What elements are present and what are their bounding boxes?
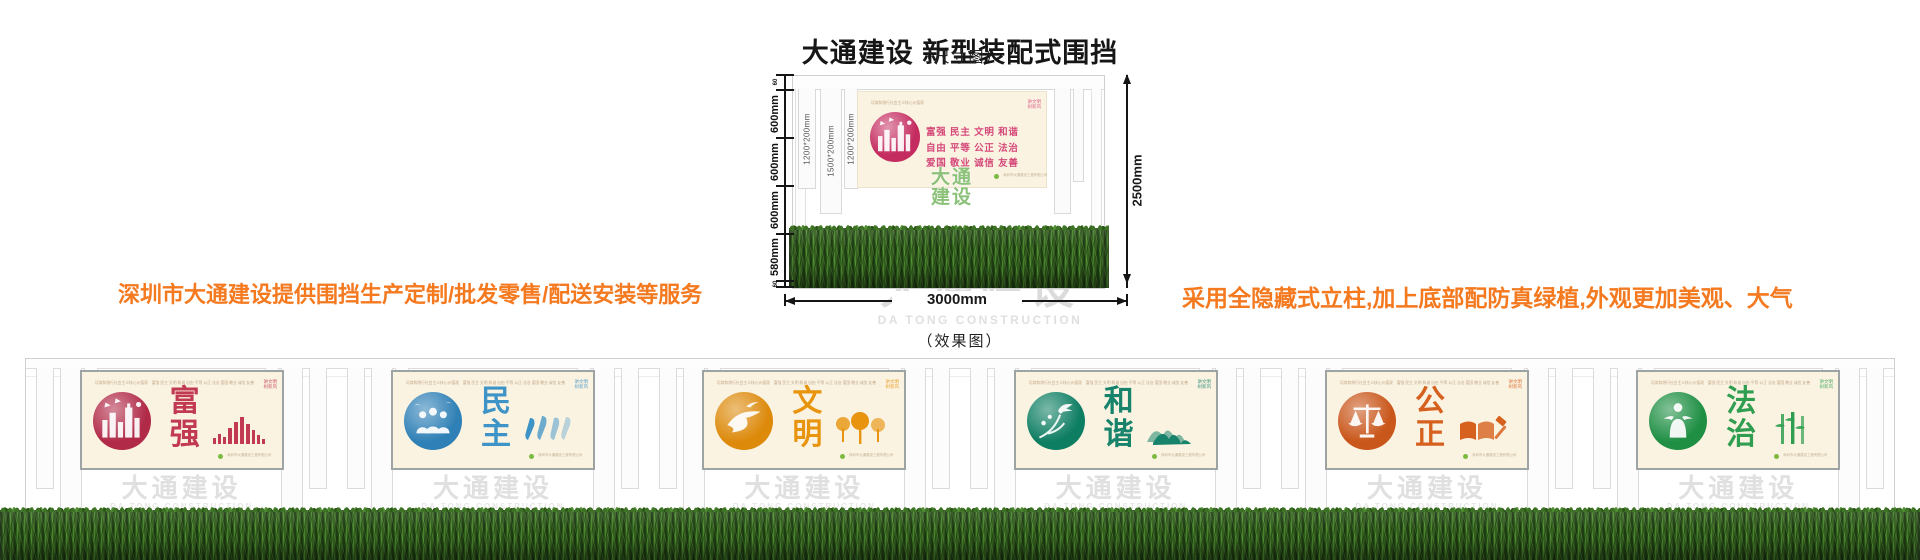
circle-motif-icon [1027, 392, 1085, 450]
circle-motif-icon [715, 392, 773, 450]
feature-note: 采用全隐藏式立柱,加上底部配防真绿植,外观更加美观、大气 [1182, 279, 1793, 313]
dim-label: 60 [773, 276, 781, 292]
fence-unit: 培育和践行社会主义核心价值观 富强 民主 文明 和谐 自由 平等 公正 法治 爱… [1583, 359, 1894, 515]
panel-corner-slogan: 讲文明 树新风 [1508, 379, 1522, 389]
panel-title: 富强 [168, 385, 202, 451]
green-dot-icon [1774, 454, 1779, 459]
panel-corner-slogan: 讲文明 树新风 [263, 379, 277, 389]
green-dot-icon [994, 174, 999, 179]
side-motif-icon [832, 412, 890, 446]
fence-post [1073, 89, 1084, 182]
panel-circle-graphic [1649, 392, 1707, 450]
green-dot-icon [529, 454, 534, 459]
panel-caption: 深圳市大通建设工程有限公司 [849, 452, 893, 457]
circle-motif-icon [1649, 392, 1707, 450]
fence-post [1527, 368, 1549, 516]
circle-motif-icon [1338, 392, 1396, 450]
value-panel: 培育和践行社会主义核心价值观 富强 民主 文明 和谐 自由 平等 公正 法治 爱… [391, 370, 595, 470]
green-dot-icon [218, 454, 223, 459]
dim-label: 580mm [769, 235, 783, 279]
panel-circle-graphic [1338, 392, 1396, 450]
watermark-en: DA TONG CONSTRUCTION [855, 313, 1105, 327]
panel-title: 民主 [479, 385, 513, 451]
panel-circle-graphic [93, 392, 151, 450]
panel-title: 和谐 [1102, 385, 1136, 451]
fence-post [309, 368, 327, 489]
fence-unit: 培育和践行社会主义核心价值观 富强 民主 文明 和谐 自由 平等 公正 法治 爱… [26, 359, 337, 515]
panel-caption: 深圳市大通建设工程有限公司 [1003, 172, 1047, 177]
fence-post [904, 368, 926, 516]
side-motif-icon [1766, 412, 1824, 446]
panel-title: 公正 [1413, 385, 1447, 451]
fence-post [1555, 368, 1573, 489]
fence-post [281, 368, 303, 516]
fence-post [1593, 368, 1611, 489]
fence-render: 培育和践行社会主义核心价值观 富强 民主 文明 和谐 自由 平等 公正 法治 爱… [25, 358, 1895, 515]
circle-motif-icon [93, 392, 151, 450]
fence-post [1215, 368, 1237, 516]
fence-drawing: 1200*200mm 1500*200mm 1200*200mm 培育和践行社会… [792, 75, 1105, 289]
value-panel: 培育和践行社会主义核心价值观 富强 民主 文明 和谐 自由 平等 公正 法治 爱… [1014, 370, 1218, 470]
panel-caption: 深圳市大通建设工程有限公司 [227, 452, 271, 457]
fence-unit: 培育和践行社会主义核心价值观 富强 民主 文明 和谐 自由 平等 公正 法治 爱… [649, 359, 960, 515]
total-height-label: 2500mm [1130, 146, 1145, 216]
fence-post [970, 368, 988, 489]
arrow-right-icon [1117, 297, 1127, 305]
fence-post [347, 368, 365, 489]
value-panel: 培育和践行社会主义核心价值观 富强 民主 文明 和谐 自由 平等 公正 法治 爱… [80, 370, 284, 470]
fence-post [1054, 89, 1071, 214]
panel-corner-slogan: 讲文明 树新风 [886, 379, 900, 389]
panel-title: 文明 [790, 385, 824, 451]
fence-post: 1500*200mm [820, 89, 842, 214]
core-values-text: 富强 民主 文明 和谐 自由 平等 公正 法治 爱国 敬业 诚信 友善 [926, 125, 1019, 172]
fence-post [36, 368, 54, 489]
panel-caption: 深圳市大通建设工程有限公司 [1161, 452, 1205, 457]
dim-label: 60 [773, 74, 781, 90]
dim-label: 600mm [769, 188, 783, 232]
post-size-label: 1200*200mm [847, 113, 856, 165]
side-motif-icon [521, 412, 579, 446]
panel-caption: 深圳市大通建设工程有限公司 [538, 452, 582, 457]
panel-corner-slogan: 讲文明 树新风 [1197, 379, 1211, 389]
fence-unit: 培育和践行社会主义核心价值观 富强 民主 文明 和谐 自由 平等 公正 法治 爱… [337, 359, 648, 515]
dim-label: 600mm [769, 92, 783, 136]
value-panel: 培育和践行社会主义核心价值观 富强 民主 文明 和谐 自由 平等 公正 法治 爱… [1636, 370, 1840, 470]
panel-corner-slogan: 讲文明 树新风 [1027, 99, 1041, 109]
fence-post: 1200*200mm [844, 89, 858, 189]
panel-circle-graphic [404, 392, 462, 450]
panel-caption: 深圳市大通建设工程有限公司 [1472, 452, 1516, 457]
panel-corner-slogan: 讲文明 树新风 [1820, 379, 1834, 389]
post-size-label: 1200*200mm [803, 113, 812, 165]
arrow-left-icon [785, 297, 795, 305]
fence-post [593, 368, 615, 516]
side-motif-icon [210, 412, 268, 446]
panel-caption: 深圳市大通建设工程有限公司 [1783, 452, 1827, 457]
value-panel: 培育和践行社会主义核心价值观 富强 民主 文明 和谐 自由 平等 公正 法治 爱… [702, 370, 906, 470]
fence-post [1243, 368, 1261, 489]
dimension-figure-label: （尺寸图） [0, 46, 1920, 67]
service-note: 深圳市大通建设提供围挡生产定制/批发零售/配送安装等服务 [118, 277, 702, 309]
fence-post [621, 368, 639, 489]
total-width-label: 3000mm [892, 291, 1022, 308]
post-size-label: 1500*200mm [827, 125, 836, 177]
panel-circle-graphic [715, 392, 773, 450]
panel-title: 法治 [1724, 385, 1758, 451]
fence-post [659, 368, 677, 489]
panel-circle-graphic [870, 112, 920, 162]
side-motif-icon [1455, 412, 1513, 446]
dim-label: 600mm [769, 140, 783, 184]
side-motif-icon [1144, 412, 1202, 446]
edge-column [1091, 89, 1102, 236]
fence-post: 1200*200mm [798, 89, 816, 189]
fence-post [1866, 368, 1884, 489]
green-dot-icon [1463, 454, 1468, 459]
fence-post [932, 368, 950, 489]
green-dot-icon [840, 454, 845, 459]
dimension-line [784, 75, 786, 288]
hedge-strip [789, 228, 1109, 288]
dimension-line [1126, 75, 1128, 288]
panel-corner-slogan: 讲文明 树新风 [574, 379, 588, 389]
circle-motif-icon [404, 392, 462, 450]
green-watermark: 大通 建设 [931, 168, 973, 208]
promo-sheet: 大通建设 新型装配式围挡 （尺寸图） 深圳市大通建设提供围挡生产定制/批发零售/… [0, 0, 1920, 560]
grass-hedge [0, 510, 1920, 560]
green-dot-icon [1152, 454, 1157, 459]
effect-figure-label: （效果图） [0, 330, 1920, 351]
effect-figure: 培育和践行社会主义核心价值观 富强 民主 文明 和谐 自由 平等 公正 法治 爱… [0, 356, 1920, 560]
arrow-down-icon [1123, 274, 1131, 284]
fence-unit: 培育和践行社会主义核心价值观 富强 民主 文明 和谐 自由 平等 公正 法治 爱… [1271, 359, 1582, 515]
dimension-diagram: 大通建设 DA TONG CONSTRUCTION 1200*200mm 150… [740, 70, 1170, 320]
arrow-up-icon [1123, 74, 1131, 84]
fence-post [1281, 368, 1299, 489]
fence-unit: 培育和践行社会主义核心价值观 富强 民主 文明 和谐 自由 平等 公正 法治 爱… [960, 359, 1271, 515]
city-paper-cut-icon [870, 112, 920, 162]
fence-post [1838, 368, 1860, 516]
top-rail [793, 76, 1104, 90]
panel-circle-graphic [1027, 392, 1085, 450]
value-panel: 培育和践行社会主义核心价值观 富强 民主 文明 和谐 自由 平等 公正 法治 爱… [1325, 370, 1529, 470]
